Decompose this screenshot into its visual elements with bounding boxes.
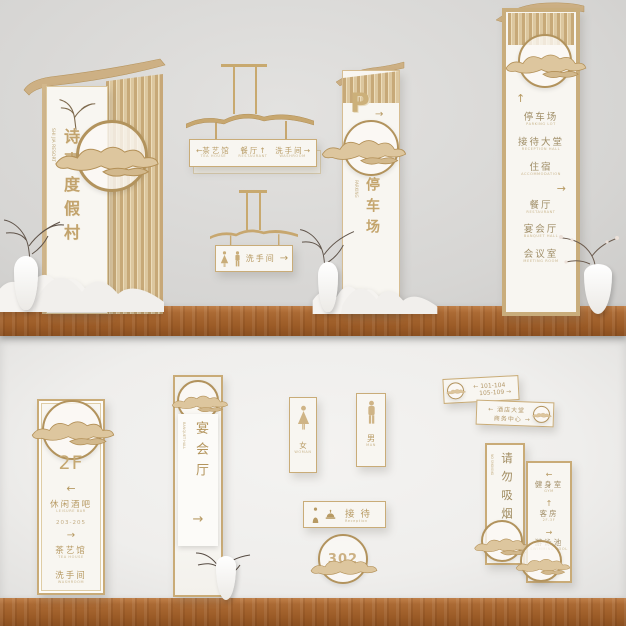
directory-row: 住宿 ACCOMMODATION [510, 159, 572, 177]
toilet-sublabel: WOMAN [290, 451, 316, 455]
lobby-text: 商务中心 [494, 415, 522, 423]
direction-sublabel: TEA HOUSE [196, 155, 231, 159]
arrow-glyph: ↑ [510, 92, 572, 105]
ceiling-bar [221, 64, 267, 67]
person-icon [311, 507, 320, 523]
arrow-glyph: → [280, 253, 288, 264]
arrow-glyph: → [375, 109, 383, 120]
directory-sublabel: RESTAURANT [510, 211, 572, 215]
lobby-line: ← 酒店大堂 [480, 403, 533, 414]
man-icon [365, 400, 378, 425]
directory-label: 停车场 [510, 109, 572, 123]
direction-sublabel: WASHROOM [275, 155, 310, 159]
arrow-glyph: → [506, 388, 511, 395]
hanging-rod [255, 64, 257, 114]
mini-directory-list: ← 健身室 GYM ↑ 客房 2F-3F → 游泳池 SWIMMING POOL [528, 470, 570, 552]
directory-row: 餐厅 RESTAURANT [510, 197, 572, 215]
cloud-ring-ornament [447, 382, 465, 400]
toilet-sign-male: 男 MAN [356, 393, 386, 467]
hanging-rod [246, 190, 248, 230]
range-line: 105-109 → [464, 388, 515, 398]
ceiling-bar [239, 190, 267, 193]
arrow-glyph: ← [39, 482, 103, 495]
arrow-glyph: ← [488, 406, 494, 413]
arrow-glyph: → [173, 512, 223, 527]
restroom-label: 洗手间 [246, 253, 276, 264]
arrow-glyph: ← [473, 383, 478, 390]
direction-sublabel: RESTAURANT [238, 155, 267, 159]
directory-label: 住宿 [510, 159, 572, 173]
lobby-line: 商务中心 → [480, 412, 533, 423]
destination-sublabel: LEISURE BAR [39, 510, 103, 514]
directory-sublabel: PARKING LOT [510, 123, 572, 127]
destination-sublabel: TEA HOUSE [39, 556, 103, 560]
parking-symbol: P [350, 88, 370, 119]
directory-sublabel: ACCOMMODATION [510, 173, 572, 177]
mini-directory-sublabel: 2F-3F [528, 519, 570, 523]
cloud-ornament-icon [26, 414, 120, 450]
woman-icon [297, 405, 310, 430]
direction-item: 洗手间→ WASHROOM [275, 147, 310, 159]
cloud-ornament-icon [531, 411, 553, 421]
cloud-ornament-icon [445, 387, 467, 397]
directory-label: 接待大堂 [510, 134, 572, 148]
reception-sublabel: Reception [345, 520, 376, 524]
directory-row: 停车场 PARKING LOT [510, 109, 572, 127]
reception-sign: 接待 Reception [303, 501, 386, 528]
man-icon [233, 251, 242, 267]
directory-row: 接待大堂 RECEPTION HALL [510, 134, 572, 152]
cloud-ornament-icon [48, 138, 166, 182]
hanging-rod [233, 64, 235, 114]
woman-icon [220, 251, 229, 267]
dry-branch-decor [2, 210, 66, 262]
arrow-glyph: → [510, 182, 572, 195]
arrow-glyph: → [39, 530, 103, 541]
cloud-ornament-icon [306, 554, 382, 582]
room-range: 203-205 [39, 520, 103, 526]
directory-label: 餐厅 [510, 197, 572, 211]
floor-number: 2F [39, 452, 103, 474]
arrow-glyph: ← [528, 470, 570, 479]
cloud-ornament-icon [168, 390, 232, 416]
arrow-glyph: ↑ [528, 499, 570, 508]
directory-sublabel: RECEPTION HALL [510, 148, 572, 152]
mini-directory-sublabel: GYM [528, 490, 570, 494]
toilet-sign-female: 女 WOMAN [289, 397, 317, 473]
hanging-rod [259, 190, 261, 230]
direction-item: ←茶艺馆 TEA HOUSE [196, 147, 231, 159]
signage-showcase-scene: SHI JIA RESORT 诗嘉度假村 ←茶艺馆 TEA HOUSE [0, 0, 626, 626]
lobby-direction-sign: ← 酒店大堂 商务中心 → [476, 400, 555, 428]
arrow-glyph: → [528, 528, 570, 537]
no-smoking-latin: NO SMOKING [490, 454, 494, 524]
banquet-label-latin: BANQUET HALL [182, 422, 186, 502]
hanger-branch-icon [186, 110, 314, 140]
bottom-wood-shelf [0, 598, 626, 626]
toilet-sublabel: MAN [357, 444, 385, 448]
direction-hanging-board: ←茶艺馆 TEA HOUSE 餐厅↑ RESTAURANT 洗手间→ WASHR… [189, 139, 317, 167]
reception-label: 接待 [345, 506, 376, 520]
cloud-ring-ornament [533, 406, 551, 424]
direction-item: 餐厅↑ RESTAURANT [238, 147, 267, 159]
restroom-hanging-board: 洗手间 → [215, 245, 293, 272]
parking-label: 停车场 [362, 177, 382, 277]
destination-sublabel: WASHROOM [39, 581, 103, 585]
floor-sign-content: 2F ← 休闲酒吧 LEISURE BAR 203-205 → 茶艺馆 TEA … [39, 452, 103, 585]
destination-label: 洗手间 [39, 569, 103, 581]
cloud-ornament-icon [500, 48, 592, 82]
cloud-ornament-icon [512, 554, 574, 578]
service-bell-icon [325, 509, 336, 520]
cloud-ornament-icon [316, 132, 412, 170]
range-text: 105-109 [479, 388, 504, 396]
